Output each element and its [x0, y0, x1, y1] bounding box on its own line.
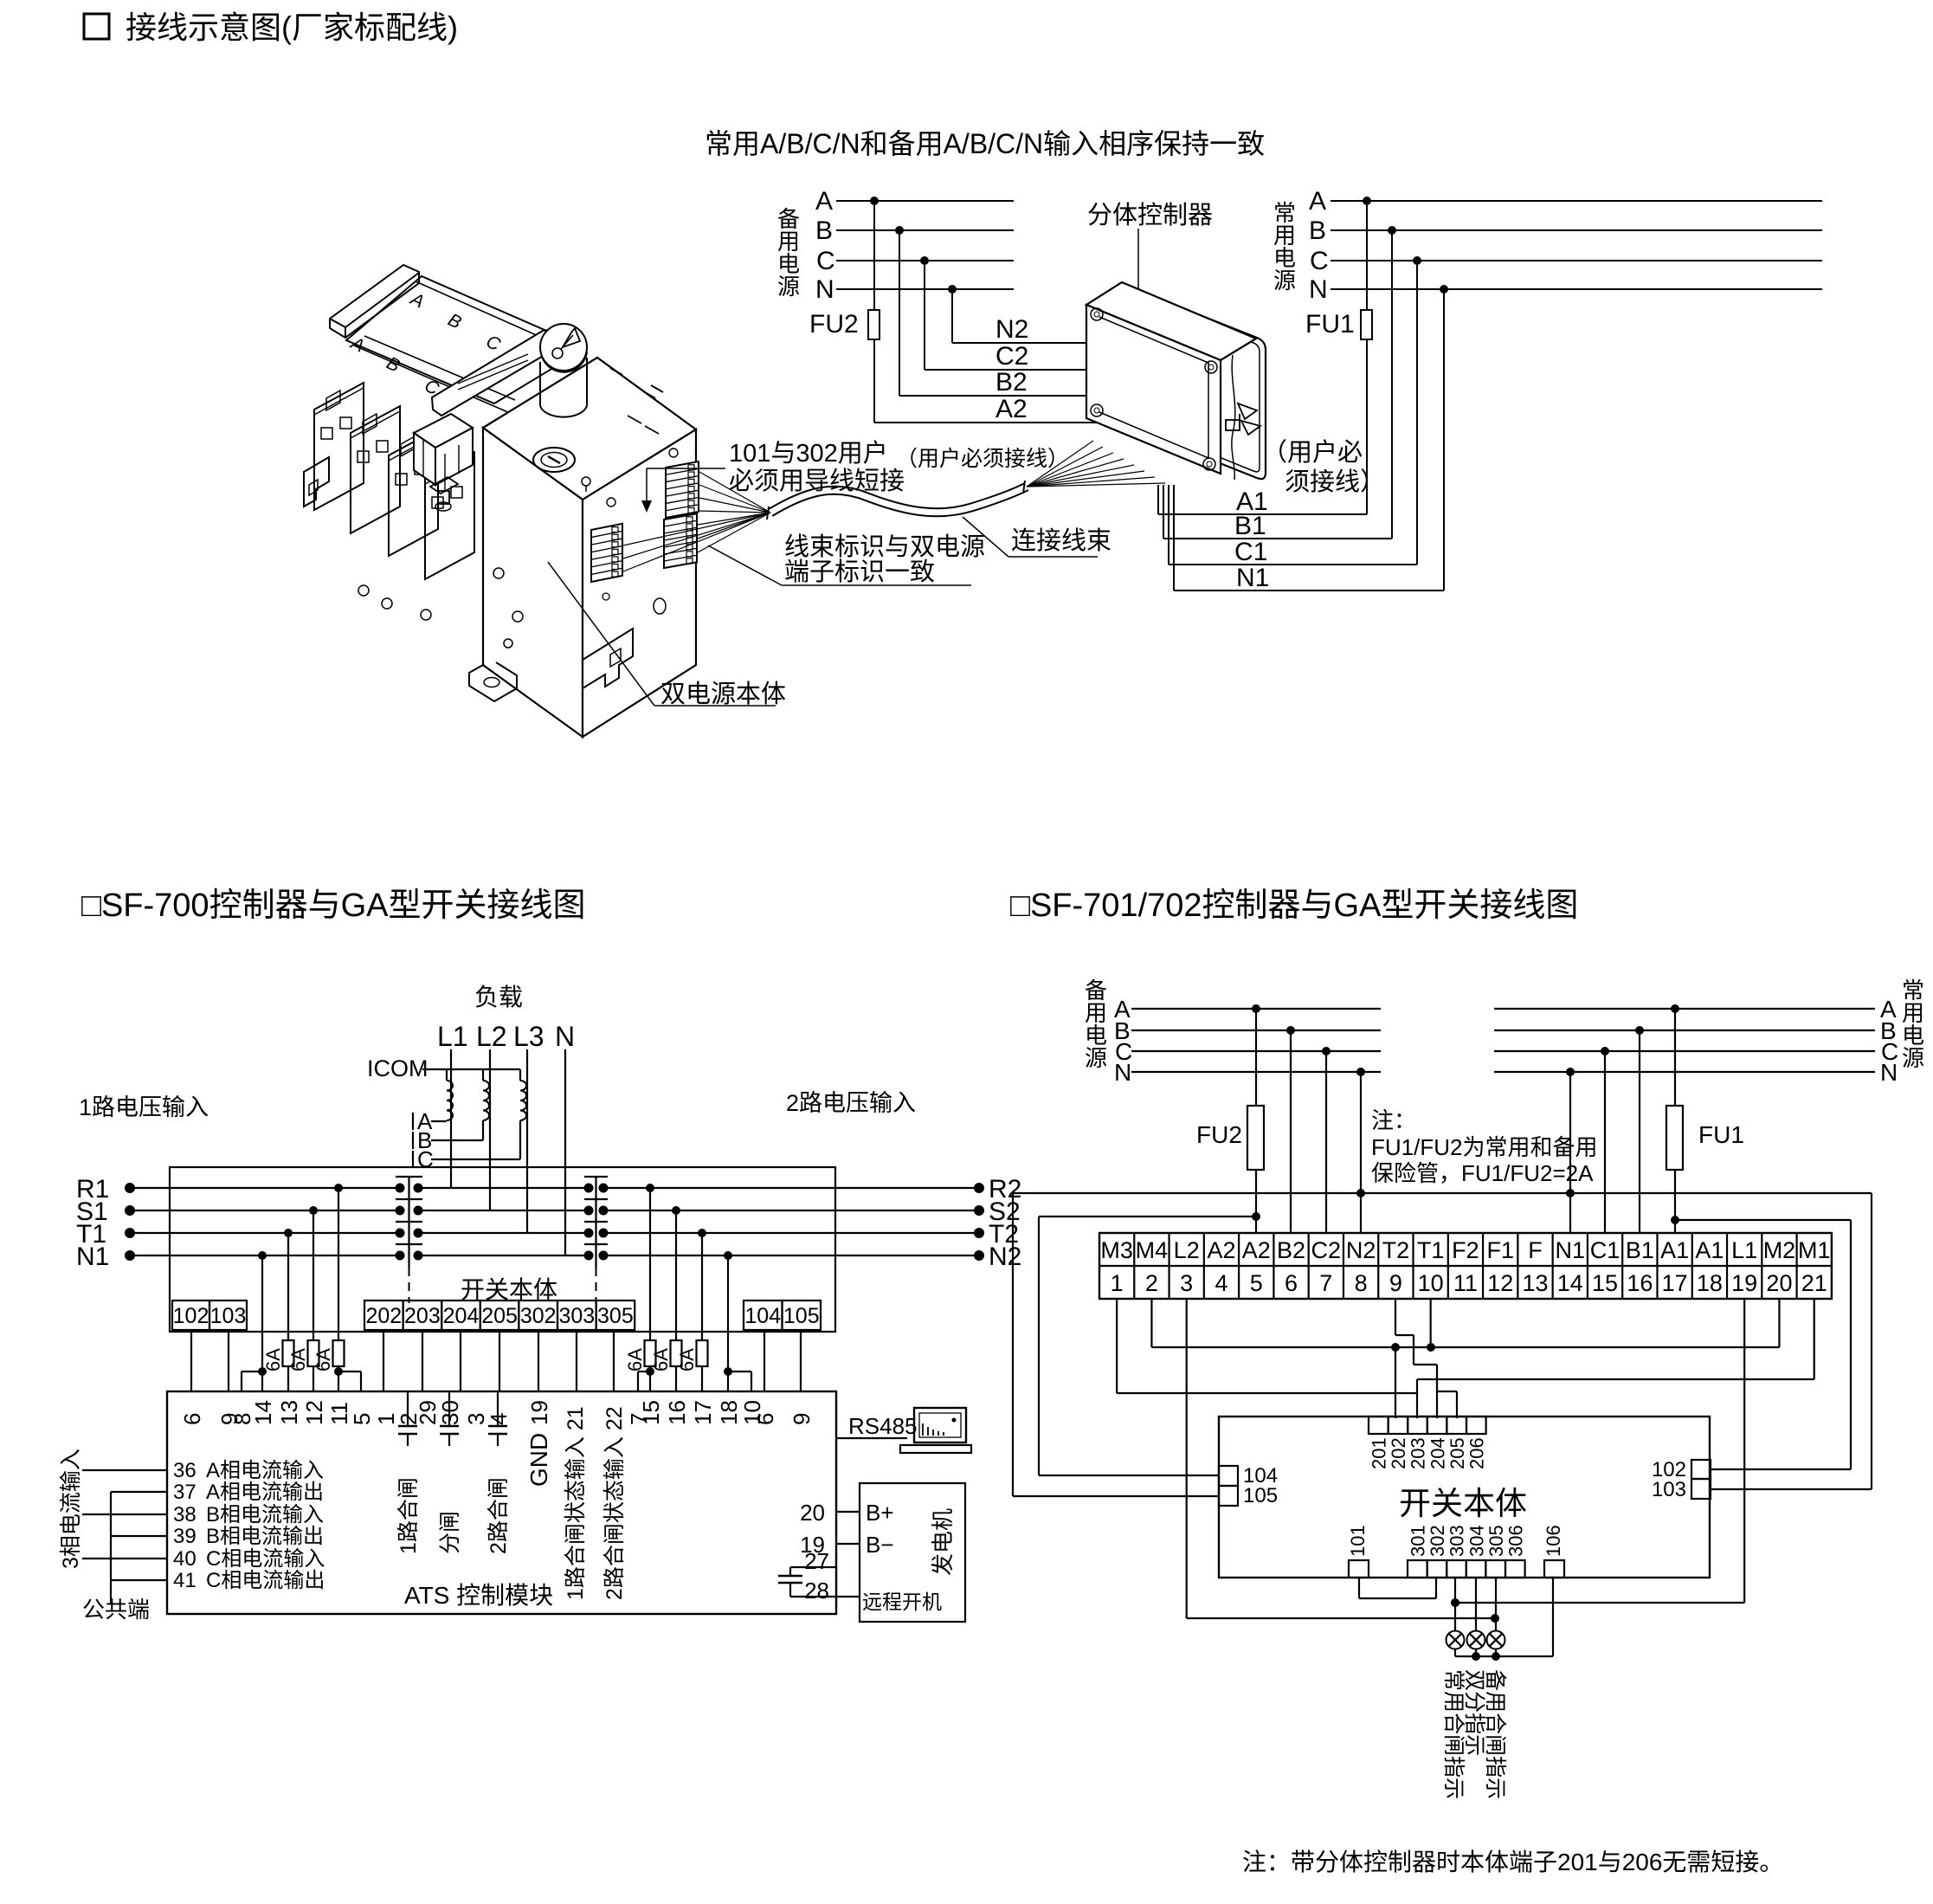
svg-text:A1: A1 [1695, 1237, 1724, 1263]
svg-text:14: 14 [1557, 1270, 1583, 1296]
svg-text:A: A [815, 187, 833, 216]
svg-text:203: 203 [404, 1304, 441, 1328]
svg-text:N: N [1880, 1059, 1898, 1086]
svg-text:□SF-701/702控制器与GA型开关接线图: □SF-701/702控制器与GA型开关接线图 [1010, 887, 1578, 924]
svg-text:T2: T2 [1382, 1237, 1410, 1263]
svg-text:L2: L2 [1174, 1237, 1200, 1263]
svg-text:A1: A1 [1660, 1237, 1689, 1263]
svg-text:A相电流输入: A相电流输入 [206, 1459, 324, 1482]
svg-text:1路合闸: 1路合闸 [396, 1477, 421, 1554]
svg-text:N: N [1114, 1059, 1131, 1086]
svg-text:F2: F2 [1452, 1237, 1479, 1263]
svg-text:C相电流输出: C相电流输出 [206, 1569, 325, 1592]
svg-text:连接线束: 连接线束 [1011, 526, 1111, 555]
svg-text:8: 8 [1355, 1270, 1368, 1296]
svg-text:必须用导线短接: 必须用导线短接 [729, 467, 905, 495]
svg-text:源: 源 [777, 274, 800, 300]
svg-text:5: 5 [349, 1413, 375, 1425]
svg-text:41: 41 [173, 1569, 197, 1592]
svg-text:6A: 6A [676, 1348, 698, 1372]
svg-text:104: 104 [744, 1304, 781, 1328]
svg-text:9: 9 [789, 1413, 815, 1425]
svg-text:19: 19 [526, 1400, 552, 1425]
svg-text:A: A [1309, 187, 1326, 216]
svg-text:6: 6 [1285, 1270, 1298, 1296]
svg-text:302: 302 [520, 1304, 557, 1328]
svg-text:N2: N2 [995, 315, 1028, 344]
svg-text:B+: B+ [866, 1500, 894, 1526]
svg-text:注：: 注： [1371, 1107, 1416, 1133]
svg-text:27: 27 [804, 1548, 829, 1574]
svg-text:16: 16 [1627, 1270, 1653, 1296]
svg-text:20: 20 [1766, 1270, 1792, 1296]
svg-text:202: 202 [365, 1304, 402, 1328]
svg-text:C: C [1310, 247, 1329, 275]
svg-text:F1: F1 [1486, 1237, 1514, 1263]
svg-text:GND: GND [525, 1433, 552, 1487]
svg-text:N: N [1309, 275, 1328, 304]
svg-text:C1: C1 [1590, 1237, 1620, 1263]
svg-text:305: 305 [597, 1304, 634, 1328]
svg-text:端子标识一致: 端子标识一致 [784, 558, 935, 586]
svg-text:负载: 负载 [474, 984, 523, 1010]
svg-text:204: 204 [1427, 1437, 1448, 1469]
svg-text:N2: N2 [1346, 1237, 1376, 1263]
svg-text:15: 15 [1592, 1270, 1618, 1296]
svg-text:N: N [815, 275, 834, 304]
svg-text:RS485: RS485 [848, 1413, 918, 1439]
svg-text:（用户必: （用户必 [1262, 438, 1363, 467]
svg-text:16: 16 [664, 1400, 690, 1425]
svg-text:301: 301 [1408, 1525, 1429, 1557]
svg-text:6: 6 [179, 1413, 205, 1425]
svg-text:C1: C1 [1234, 538, 1267, 566]
svg-text:9: 9 [1389, 1270, 1402, 1296]
svg-text:源: 源 [1273, 268, 1296, 294]
svg-text:须接线）: 须接线） [1285, 468, 1385, 496]
svg-text:L3: L3 [513, 1021, 544, 1052]
svg-text:204: 204 [443, 1304, 480, 1328]
svg-text:15: 15 [638, 1400, 664, 1425]
svg-text:302: 302 [1427, 1525, 1448, 1557]
svg-text:1路电压输入: 1路电压输入 [79, 1094, 209, 1120]
svg-text:N1: N1 [76, 1242, 109, 1271]
svg-text:18: 18 [1697, 1270, 1723, 1296]
svg-text:21: 21 [1801, 1270, 1827, 1296]
svg-text:101: 101 [1347, 1525, 1369, 1557]
svg-text:205: 205 [1447, 1437, 1468, 1469]
svg-text:T1: T1 [1417, 1237, 1445, 1263]
svg-text:ICOM: ICOM [367, 1055, 428, 1081]
svg-text:L2: L2 [476, 1021, 507, 1052]
svg-text:2路合闸: 2路合闸 [486, 1477, 511, 1554]
svg-text:FU2: FU2 [809, 310, 859, 339]
svg-text:303: 303 [1447, 1525, 1468, 1557]
svg-text:105: 105 [783, 1304, 820, 1328]
svg-text:12: 12 [1487, 1270, 1513, 1296]
svg-text:11: 11 [1453, 1270, 1478, 1296]
svg-text:1: 1 [1111, 1270, 1124, 1296]
svg-text:B1: B1 [1626, 1237, 1654, 1263]
svg-text:ATS 控制模块: ATS 控制模块 [404, 1582, 553, 1609]
svg-text:103: 103 [1652, 1478, 1686, 1501]
svg-text:3: 3 [1180, 1270, 1193, 1296]
svg-text:备用合闸指示: 备用合闸指示 [1483, 1669, 1507, 1799]
svg-text:开关本体: 开关本体 [1399, 1486, 1527, 1521]
svg-text:C2: C2 [995, 342, 1028, 371]
svg-text:5: 5 [1250, 1270, 1263, 1296]
svg-text:13: 13 [276, 1400, 302, 1425]
svg-text:M1: M1 [1798, 1237, 1831, 1263]
svg-text:M4: M4 [1136, 1237, 1169, 1263]
svg-text:接线示意图(厂家标配线): 接线示意图(厂家标配线) [126, 10, 458, 45]
svg-text:13: 13 [1522, 1270, 1548, 1296]
svg-text:双电源本体: 双电源本体 [660, 680, 786, 708]
svg-text:A2: A2 [995, 395, 1028, 423]
svg-text:18: 18 [716, 1400, 742, 1425]
svg-text:203: 203 [1408, 1437, 1429, 1469]
svg-text:L1: L1 [1731, 1237, 1757, 1263]
svg-text:2路合闸状态输入 22: 2路合闸状态输入 22 [602, 1406, 627, 1600]
svg-text:常用合闸指示: 常用合闸指示 [1441, 1669, 1466, 1799]
svg-text:306: 306 [1505, 1525, 1527, 1557]
svg-text:发电机: 发电机 [930, 1508, 956, 1576]
svg-text:C相电流输入: C相电流输入 [206, 1547, 325, 1571]
svg-text:注：带分体控制器时本体端子201与206无需短接。: 注：带分体控制器时本体端子201与206无需短接。 [1242, 1849, 1783, 1875]
svg-text:A相电流输出: A相电流输出 [206, 1481, 324, 1504]
svg-text:37: 37 [173, 1481, 197, 1504]
svg-text:B2: B2 [1277, 1237, 1305, 1263]
svg-text:B−: B− [866, 1532, 894, 1558]
svg-text:36: 36 [173, 1459, 197, 1482]
svg-text:201: 201 [1369, 1437, 1390, 1469]
svg-text:分体控制器: 分体控制器 [1087, 201, 1213, 229]
svg-text:202: 202 [1388, 1437, 1409, 1469]
svg-text:6: 6 [752, 1413, 778, 1425]
svg-text:□SF-700控制器与GA型开关接线图: □SF-700控制器与GA型开关接线图 [81, 887, 585, 924]
svg-text:F: F [1528, 1237, 1543, 1263]
svg-text:B: B [815, 216, 833, 245]
svg-text:102: 102 [173, 1304, 209, 1328]
svg-text:C: C [816, 247, 835, 275]
svg-text:B相电流输入: B相电流输入 [206, 1503, 324, 1526]
svg-text:303: 303 [558, 1304, 595, 1328]
svg-text:线束标识与双电源: 线束标识与双电源 [784, 532, 985, 561]
svg-text:305: 305 [1485, 1525, 1507, 1557]
svg-text:39: 39 [173, 1525, 197, 1548]
svg-text:17: 17 [690, 1400, 716, 1425]
svg-text:A2: A2 [1207, 1237, 1235, 1263]
svg-text:106: 106 [1543, 1525, 1564, 1557]
svg-text:304: 304 [1466, 1525, 1487, 1557]
svg-text:20: 20 [800, 1500, 825, 1526]
svg-text:105: 105 [1243, 1484, 1278, 1507]
svg-text:N2: N2 [989, 1242, 1021, 1271]
svg-text:38: 38 [173, 1503, 197, 1526]
svg-text:19: 19 [1731, 1270, 1757, 1296]
svg-text:FU2: FU2 [1196, 1121, 1242, 1148]
svg-text:源: 源 [1085, 1045, 1107, 1071]
svg-text:40: 40 [173, 1547, 197, 1571]
svg-text:6A: 6A [313, 1348, 334, 1372]
svg-text:B: B [1309, 216, 1326, 245]
svg-text:B2: B2 [995, 368, 1028, 397]
svg-text:源: 源 [1902, 1045, 1924, 1071]
svg-text:6A: 6A [262, 1348, 284, 1372]
svg-text:14: 14 [250, 1400, 276, 1425]
svg-text:M2: M2 [1763, 1237, 1796, 1263]
svg-text:A2: A2 [1242, 1237, 1271, 1263]
svg-text:B相电流输出: B相电流输出 [206, 1525, 324, 1548]
svg-text:双分指示: 双分指示 [1462, 1669, 1486, 1756]
svg-text:N1: N1 [1236, 564, 1269, 592]
svg-text:M3: M3 [1100, 1237, 1133, 1263]
svg-text:17: 17 [1662, 1270, 1688, 1296]
svg-text:101与302用户: 101与302用户 [729, 439, 888, 468]
svg-text:B1: B1 [1234, 512, 1266, 540]
svg-text:FU1: FU1 [1698, 1121, 1744, 1148]
svg-text:206: 206 [1466, 1437, 1488, 1469]
svg-text:FU1/FU2为常用和备用: FU1/FU2为常用和备用 [1371, 1134, 1597, 1160]
svg-text:公共端: 公共端 [82, 1597, 150, 1623]
svg-text:7: 7 [1319, 1270, 1332, 1296]
svg-text:C2: C2 [1311, 1237, 1342, 1263]
svg-text:N1: N1 [1556, 1237, 1586, 1263]
svg-text:（用户必须接线）: （用户必须接线） [896, 447, 1069, 471]
svg-text:6A: 6A [287, 1348, 309, 1372]
svg-text:L1: L1 [437, 1021, 468, 1052]
svg-text:12: 12 [301, 1400, 327, 1425]
svg-text:6A: 6A [624, 1348, 646, 1372]
svg-text:3相电流输入: 3相电流输入 [59, 1449, 83, 1569]
svg-text:开关本体: 开关本体 [461, 1276, 557, 1303]
svg-text:6A: 6A [650, 1348, 672, 1372]
svg-text:分闸: 分闸 [438, 1511, 462, 1554]
svg-text:4: 4 [1215, 1270, 1227, 1296]
svg-text:C: C [417, 1146, 434, 1172]
svg-text:103: 103 [210, 1304, 247, 1328]
svg-text:远程开机: 远程开机 [862, 1591, 942, 1613]
svg-text:28: 28 [804, 1578, 829, 1604]
svg-text:1路合闸状态输入 21: 1路合闸状态输入 21 [564, 1406, 588, 1600]
svg-text:常用A/B/C/N和备用A/B/C/N输入相序保持一致: 常用A/B/C/N和备用A/B/C/N输入相序保持一致 [705, 128, 1265, 159]
svg-text:10: 10 [1418, 1270, 1444, 1296]
svg-text:2路电压输入: 2路电压输入 [786, 1090, 916, 1116]
svg-text:N: N [555, 1021, 575, 1052]
svg-text:保险管，FU1/FU2=2A: 保险管，FU1/FU2=2A [1371, 1160, 1594, 1186]
svg-text:2: 2 [1145, 1270, 1158, 1296]
svg-text:205: 205 [481, 1304, 518, 1328]
svg-text:FU1: FU1 [1305, 310, 1355, 339]
